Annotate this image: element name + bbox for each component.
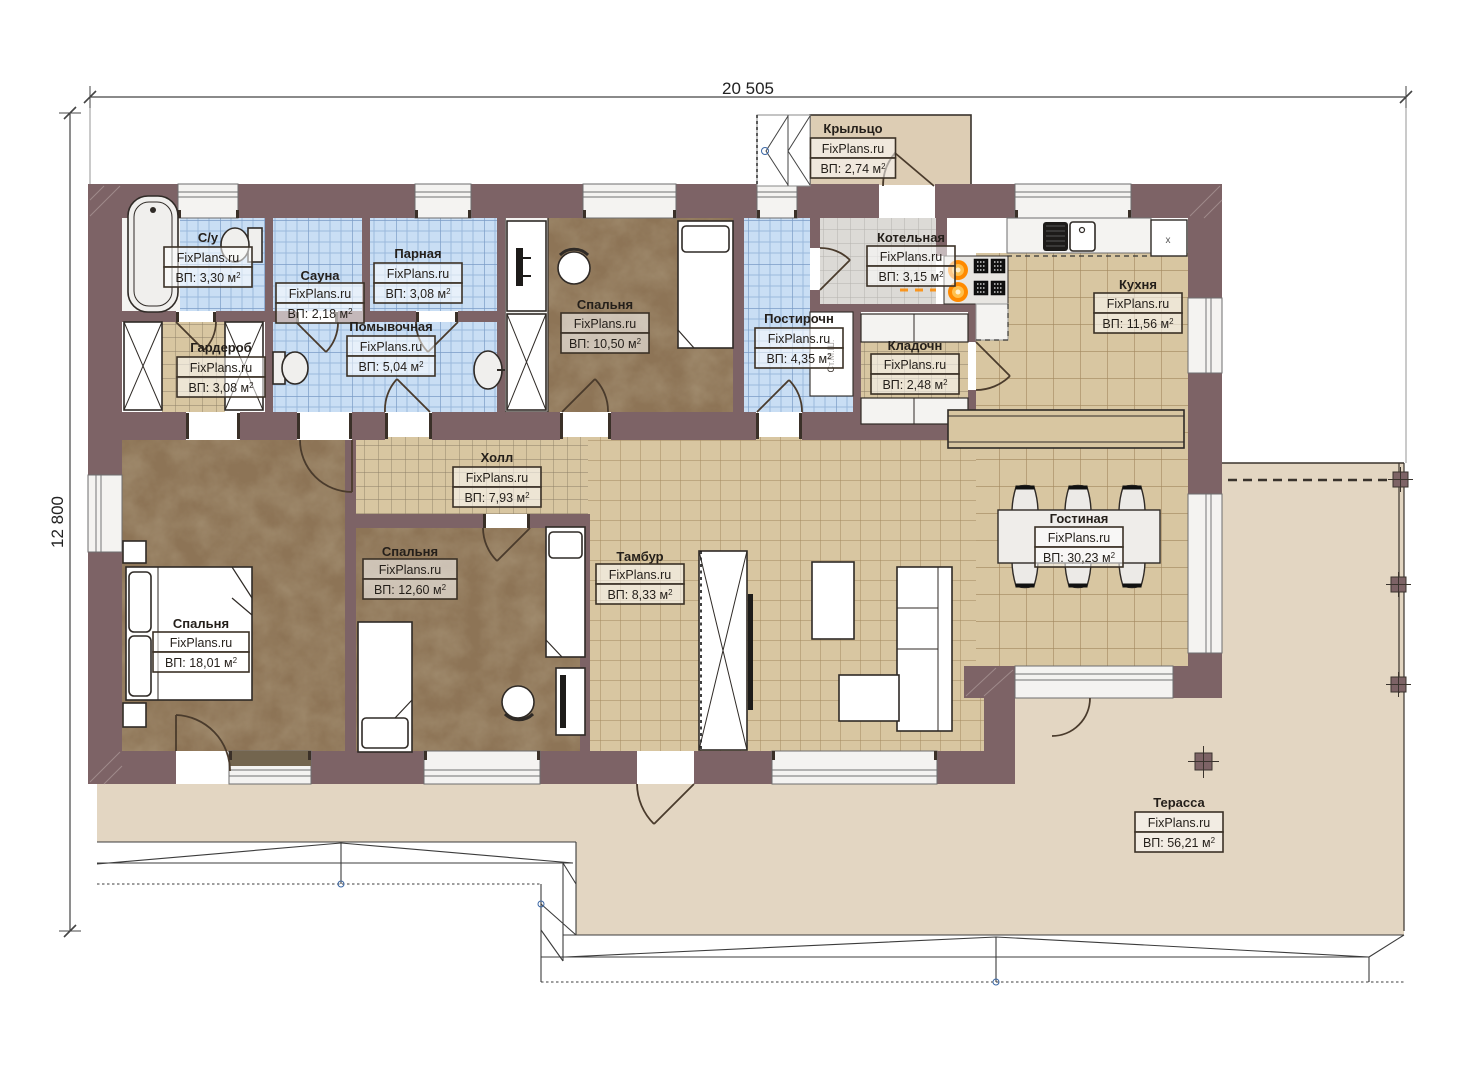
svg-text:Сауна: Сауна	[300, 268, 340, 283]
svg-text:ВП: 12,60 м2: ВП: 12,60 м2	[374, 583, 447, 597]
svg-text:FixPlans.ru: FixPlans.ru	[170, 636, 233, 650]
svg-text:FixPlans.ru: FixPlans.ru	[1048, 531, 1111, 545]
svg-text:ВП: 3,08 м2: ВП: 3,08 м2	[385, 287, 451, 301]
svg-text:FixPlans.ru: FixPlans.ru	[289, 287, 352, 301]
svg-text:FixPlans.ru: FixPlans.ru	[822, 142, 885, 156]
svg-text:ВП: 3,15 м2: ВП: 3,15 м2	[878, 270, 944, 284]
svg-text:FixPlans.ru: FixPlans.ru	[1107, 297, 1170, 311]
svg-text:ВП: 18,01 м2: ВП: 18,01 м2	[165, 656, 238, 670]
svg-text:Кухня: Кухня	[1119, 277, 1157, 292]
svg-text:Кладочн: Кладочн	[888, 338, 943, 353]
svg-text:ВП: 7,93 м2: ВП: 7,93 м2	[464, 491, 530, 505]
svg-text:Спальня: Спальня	[382, 544, 438, 559]
svg-text:ВП: 4,35 м2: ВП: 4,35 м2	[766, 352, 832, 366]
svg-text:С/у: С/у	[198, 230, 219, 245]
svg-text:FixPlans.ru: FixPlans.ru	[1148, 816, 1211, 830]
svg-text:Терасса: Терасса	[1153, 795, 1205, 810]
svg-text:FixPlans.ru: FixPlans.ru	[387, 267, 450, 281]
svg-text:Спальня: Спальня	[173, 616, 229, 631]
svg-text:12 800: 12 800	[48, 496, 67, 548]
svg-text:FixPlans.ru: FixPlans.ru	[768, 332, 831, 346]
svg-text:FixPlans.ru: FixPlans.ru	[880, 250, 943, 264]
svg-text:FixPlans.ru: FixPlans.ru	[884, 358, 947, 372]
svg-text:ВП: 8,33 м2: ВП: 8,33 м2	[607, 588, 673, 602]
svg-text:Котельная: Котельная	[877, 230, 945, 245]
svg-text:Постирочн: Постирочн	[764, 311, 834, 326]
svg-text:FixPlans.ru: FixPlans.ru	[466, 471, 529, 485]
svg-text:ВП: 56,21 м2: ВП: 56,21 м2	[1143, 836, 1216, 850]
svg-text:FixPlans.ru: FixPlans.ru	[190, 361, 253, 375]
svg-text:FixPlans.ru: FixPlans.ru	[609, 568, 672, 582]
svg-text:Гостиная: Гостиная	[1050, 511, 1109, 526]
svg-text:FixPlans.ru: FixPlans.ru	[574, 317, 637, 331]
svg-text:ВП: 2,48 м2: ВП: 2,48 м2	[882, 378, 948, 392]
svg-text:ВП: 30,23 м2: ВП: 30,23 м2	[1043, 551, 1116, 565]
svg-text:FixPlans.ru: FixPlans.ru	[379, 563, 442, 577]
svg-text:FixPlans.ru: FixPlans.ru	[177, 251, 240, 265]
svg-text:ВП: 2,18 м2: ВП: 2,18 м2	[287, 307, 353, 321]
svg-text:FixPlans.ru: FixPlans.ru	[360, 340, 423, 354]
svg-text:ВП: 3,30 м2: ВП: 3,30 м2	[175, 271, 241, 285]
svg-text:Холл: Холл	[481, 450, 514, 465]
svg-text:x: x	[1166, 235, 1171, 246]
svg-text:ВП: 5,04 м2: ВП: 5,04 м2	[358, 360, 424, 374]
svg-text:ВП: 11,56 м2: ВП: 11,56 м2	[1102, 317, 1174, 331]
svg-text:ВП: 2,74 м2: ВП: 2,74 м2	[820, 162, 886, 176]
svg-text:20 505: 20 505	[722, 79, 774, 98]
svg-text:Крыльцо: Крыльцо	[823, 121, 882, 136]
svg-text:Гардероб: Гардероб	[190, 340, 251, 355]
svg-text:Помывочная: Помывочная	[349, 319, 432, 334]
svg-text:Тамбур: Тамбур	[616, 549, 663, 564]
svg-text:Спальня: Спальня	[577, 297, 633, 312]
svg-text:ВП: 10,50 м2: ВП: 10,50 м2	[569, 337, 642, 351]
svg-text:ВП: 3,08 м2: ВП: 3,08 м2	[188, 381, 254, 395]
svg-text:Парная: Парная	[394, 246, 441, 261]
